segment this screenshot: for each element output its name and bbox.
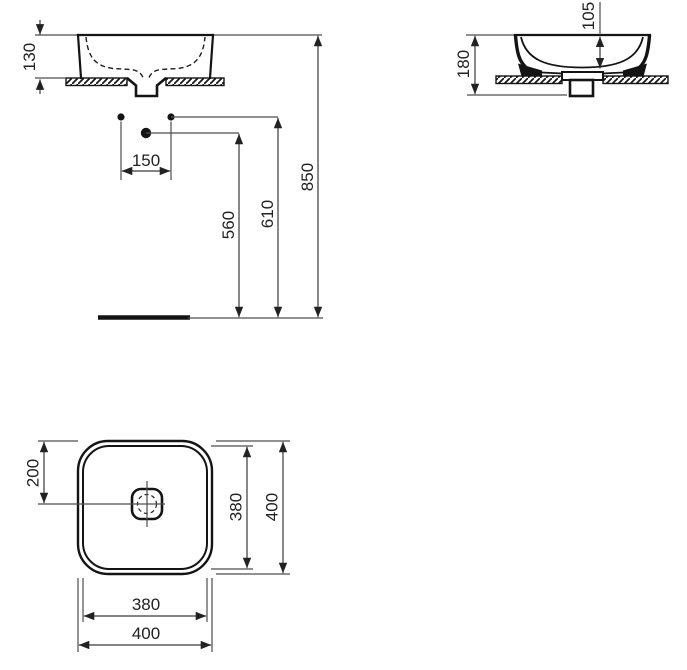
- countertop-side-right: [603, 76, 668, 84]
- dim-label-150: 150: [132, 151, 160, 170]
- technical-drawing-canvas: 130 150 850 610 560: [0, 0, 687, 670]
- dim-label-200: 200: [24, 459, 43, 487]
- basin-underside-left: [542, 73, 563, 74]
- countertop-side-left: [496, 76, 562, 84]
- plan-view-drawing: 200 380 400 380 400: [24, 441, 291, 652]
- basin-front-inner-bowl-dashed: [86, 37, 205, 78]
- basin-front-left-wall: [78, 35, 81, 78]
- dim-label-380-bottom: 380: [132, 595, 160, 614]
- drain-tailpiece-front: [127, 78, 166, 96]
- fixing-hole-left: [117, 113, 124, 120]
- dim-label-850: 850: [298, 163, 317, 191]
- front-view-drawing: 130 150 850 610 560: [20, 20, 323, 318]
- basin-side-left-foot: [518, 64, 542, 77]
- basin-side-right-wall: [640, 36, 650, 68]
- basin-side-left-wall: [516, 36, 527, 68]
- dim-label-400-bottom: 400: [132, 624, 160, 643]
- dim-label-130: 130: [20, 43, 39, 71]
- dim-label-560: 560: [219, 211, 238, 239]
- dim-label-380-right: 380: [227, 493, 246, 521]
- basin-side-right-foot: [623, 64, 647, 77]
- basin-front-right-wall: [210, 35, 213, 78]
- dim-label-180: 180: [454, 50, 473, 78]
- dim-label-610: 610: [258, 200, 277, 228]
- side-view-drawing: 105 180: [454, 2, 668, 96]
- washbasin-drawing: 130 150 850 610 560: [0, 0, 687, 670]
- basin-underside-right: [602, 73, 623, 74]
- dim-label-400-right: 400: [263, 493, 282, 521]
- countertop-front-left: [66, 78, 127, 86]
- basin-side-inner-bowl: [521, 37, 643, 68]
- drain-tailpiece-side: [570, 80, 593, 96]
- countertop-front-right: [166, 78, 224, 86]
- dim-label-105: 105: [579, 2, 598, 30]
